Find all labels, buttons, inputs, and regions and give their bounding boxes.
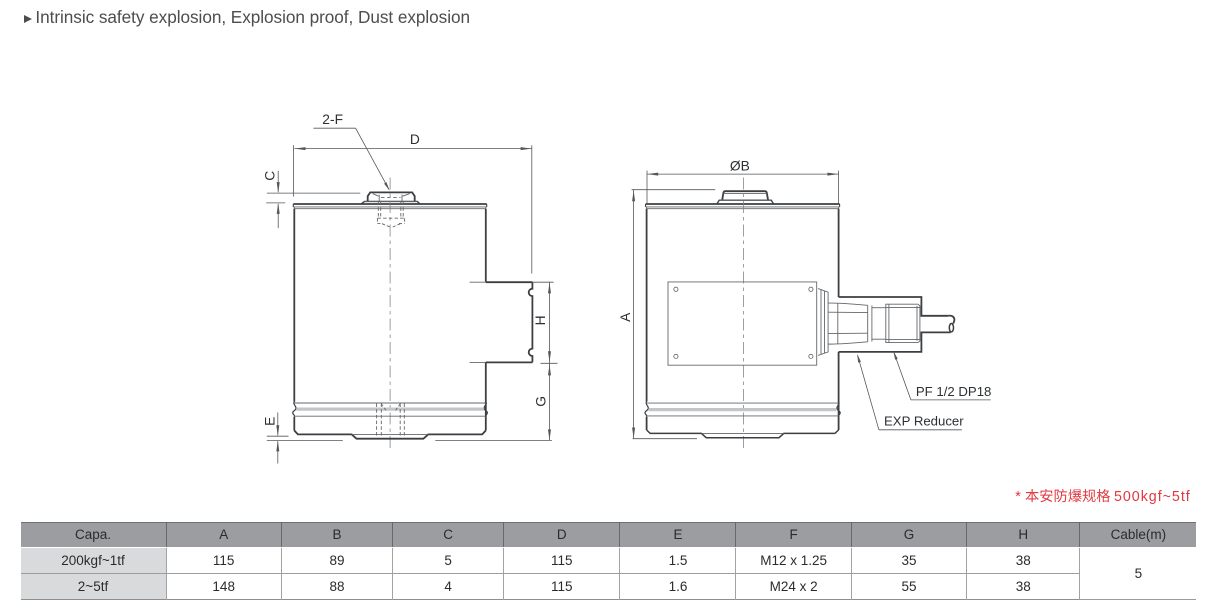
svg-text:*: * bbox=[1015, 489, 1021, 505]
svg-text:D: D bbox=[410, 132, 420, 147]
svg-text:EXP Reducer: EXP Reducer bbox=[884, 413, 964, 428]
svg-text:ØB: ØB bbox=[730, 158, 750, 173]
svg-text:500kgf~5tf: 500kgf~5tf bbox=[1114, 489, 1191, 505]
svg-text:PF 1/2 DP18: PF 1/2 DP18 bbox=[916, 384, 992, 399]
svg-text:A: A bbox=[618, 312, 633, 322]
svg-text:G: G bbox=[533, 396, 548, 407]
svg-text:C: C bbox=[262, 171, 277, 181]
svg-text:2-F: 2-F bbox=[322, 112, 343, 127]
svg-text:H: H bbox=[533, 315, 548, 325]
svg-text:E: E bbox=[262, 417, 277, 426]
